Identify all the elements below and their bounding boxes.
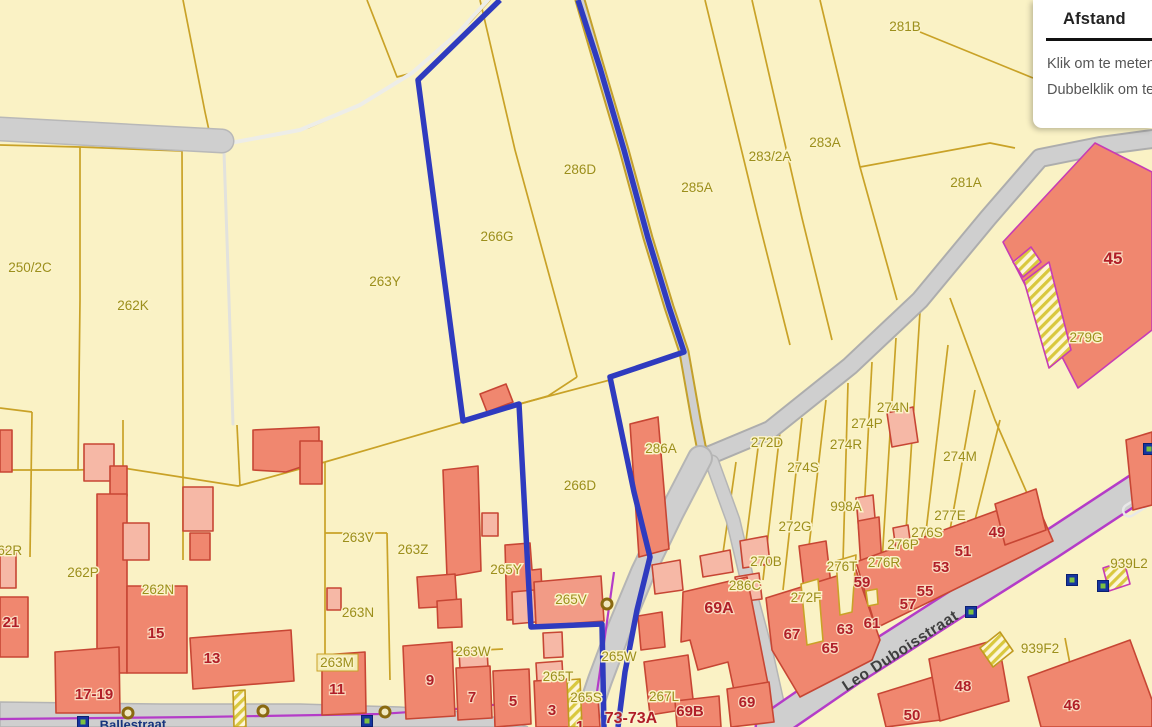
utility-marker-icon xyxy=(362,716,373,727)
building xyxy=(437,599,462,628)
dot xyxy=(1147,447,1152,452)
parcel-label: 263W xyxy=(455,644,491,659)
building xyxy=(482,513,498,536)
house-number: 13 xyxy=(204,650,221,667)
parcel-label: 274S xyxy=(787,460,819,475)
house-number: 67 xyxy=(784,626,801,643)
parcel-wedge xyxy=(866,589,878,606)
address-point-icon xyxy=(258,706,268,716)
parcel-label: 262N xyxy=(142,582,174,597)
parcel-label: 265W xyxy=(601,649,637,664)
parcel-label: 262K xyxy=(117,298,149,313)
parcel-label: 262P xyxy=(67,565,99,580)
ring xyxy=(602,599,612,609)
house-number: 57 xyxy=(900,596,917,613)
parcel-label: 263V xyxy=(342,530,374,545)
building xyxy=(190,533,210,560)
parcel-label: 279G xyxy=(1069,330,1102,345)
house-number: 7 xyxy=(468,689,476,706)
house-number: 15 xyxy=(148,625,165,642)
utility-marker-icon xyxy=(1098,581,1109,592)
tab-afstand[interactable]: Afstand xyxy=(1033,0,1152,29)
parcel-label: 272G xyxy=(778,519,811,534)
house-number: 63 xyxy=(837,621,854,638)
parcel-label: 286C xyxy=(729,578,762,593)
parcel-label: 265S xyxy=(570,690,602,705)
parcel-label: 263Y xyxy=(369,274,401,289)
address-point-icon xyxy=(380,707,390,717)
parcel-label: 286A xyxy=(645,441,677,456)
parcel-label: 262R xyxy=(0,543,22,558)
ring xyxy=(258,706,268,716)
house-number: 11 xyxy=(329,681,345,698)
utility-marker-icon xyxy=(1067,575,1078,586)
building xyxy=(0,430,12,472)
parcel-label: 266G xyxy=(480,229,513,244)
house-number: 69A xyxy=(704,600,734,617)
house-number: 73-73A xyxy=(605,710,658,727)
house-number: 9 xyxy=(426,672,434,689)
parcel-label: 283A xyxy=(809,135,841,150)
house-number: 46 xyxy=(1064,697,1081,714)
measure-tool-panel: Afstand Klik om te meten Dubbelklik om t… xyxy=(1033,0,1152,128)
parcel-label: 276T xyxy=(827,559,858,574)
parcel-label: 276P xyxy=(887,537,919,552)
parcel-label: 265T xyxy=(543,669,574,684)
parcel-label: 283/2A xyxy=(749,149,792,164)
house-number: 3 xyxy=(548,702,556,719)
parcel-label: 281B xyxy=(889,19,921,34)
house-number: 45 xyxy=(1104,249,1123,268)
utility-marker-icon xyxy=(78,717,89,727)
parcel-label: 939L2 xyxy=(1110,556,1148,571)
house-number: 65 xyxy=(822,640,839,657)
parcel-label: 272F xyxy=(791,590,822,605)
building xyxy=(638,612,665,650)
house-number: 61 xyxy=(864,615,881,632)
parcel-label: 265V xyxy=(555,592,587,607)
parcel-label: 277E xyxy=(934,508,966,523)
building xyxy=(652,560,683,594)
parcel-label: 286D xyxy=(564,162,597,177)
parcel-label: 274N xyxy=(877,400,909,415)
building xyxy=(123,523,149,560)
parcel-label: 285A xyxy=(681,180,713,195)
house-number: 51 xyxy=(955,543,972,560)
building xyxy=(543,632,563,658)
building xyxy=(300,441,322,484)
building xyxy=(233,690,246,727)
parcel-label: 266D xyxy=(564,478,597,493)
parcel-label: 998A xyxy=(830,499,862,514)
house-number: 5 xyxy=(509,693,517,710)
utility-marker-icon xyxy=(966,607,977,618)
house-number: 21 xyxy=(3,614,20,631)
parcel-label: 272D xyxy=(751,435,784,450)
parcel-label: 276R xyxy=(868,555,901,570)
dot xyxy=(365,719,370,724)
parcel-label: 265Y xyxy=(490,562,522,577)
building xyxy=(327,588,341,610)
dot xyxy=(81,720,86,725)
parcel-label: 274R xyxy=(830,437,863,452)
parcel-label: 281A xyxy=(950,175,982,190)
parcel-label: 939F2 xyxy=(1021,641,1059,656)
parcel-label: 267L xyxy=(649,689,680,704)
street-name-label: Ballestraat xyxy=(100,716,167,727)
house-number: 69B xyxy=(676,703,704,720)
road xyxy=(0,129,222,141)
house-number: 55 xyxy=(917,583,934,600)
map-viewer: 281B283A283/2A285A286D266G263Y262K250/2C… xyxy=(0,0,1152,727)
parcel-label: 263M xyxy=(320,655,354,670)
parcel-label: 270B xyxy=(750,554,782,569)
parcel-label: 274P xyxy=(851,416,883,431)
house-number: 48 xyxy=(955,678,972,695)
parcel-label: 250/2C xyxy=(8,260,52,275)
ring xyxy=(380,707,390,717)
house-number: 69 xyxy=(739,694,756,711)
measure-hint-line2: Dubbelklik om te xyxy=(1047,77,1152,103)
dot xyxy=(1101,584,1106,589)
building xyxy=(443,466,481,577)
house-number: 59 xyxy=(854,574,871,591)
parcel-label: 263Z xyxy=(398,542,429,557)
house-number: 1 xyxy=(576,718,584,727)
measure-hint-line1: Klik om te meten xyxy=(1047,51,1152,77)
house-number: 50 xyxy=(904,707,921,724)
dot xyxy=(969,610,974,615)
address-point-icon xyxy=(602,599,612,609)
dot xyxy=(1070,578,1075,583)
map-canvas[interactable]: 281B283A283/2A285A286D266G263Y262K250/2C… xyxy=(0,0,1152,727)
house-number: 17-19 xyxy=(75,686,113,703)
building xyxy=(110,466,127,496)
parcel-label: 274M xyxy=(943,449,977,464)
building xyxy=(183,487,213,531)
utility-marker-icon xyxy=(1144,444,1152,455)
parcel-label: 263N xyxy=(342,605,374,620)
house-number: 49 xyxy=(989,524,1006,541)
building xyxy=(55,647,120,713)
house-number: 53 xyxy=(933,559,950,576)
building xyxy=(97,494,127,673)
